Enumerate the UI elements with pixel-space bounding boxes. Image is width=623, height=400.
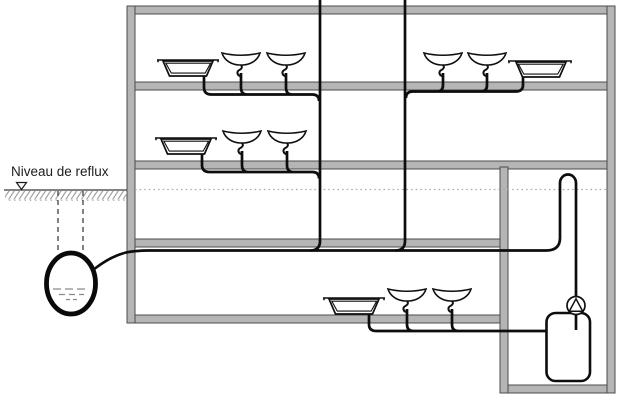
interior-wall xyxy=(500,167,508,393)
right-wall xyxy=(607,6,615,393)
ground: Niveau de reflux xyxy=(4,164,127,201)
washbasin-icon xyxy=(433,289,471,312)
bathtub-icon xyxy=(323,298,385,314)
washbasin-icon xyxy=(222,53,260,76)
bathtub-icon xyxy=(508,61,572,77)
annex-floor-slab xyxy=(500,385,615,393)
washbasin-icon xyxy=(268,131,306,154)
floor3-slab xyxy=(127,239,508,247)
floor2-slab xyxy=(127,161,615,169)
left-wall xyxy=(127,6,135,323)
washbasin-icon xyxy=(388,289,426,312)
backflow-diagram: Niveau de reflux xyxy=(0,0,623,400)
lifting-station xyxy=(547,297,591,382)
roof-slab xyxy=(127,6,615,14)
vent-stack-1 xyxy=(311,0,321,251)
bathtub-icon xyxy=(157,60,219,76)
reflux-marker-icon xyxy=(17,183,27,190)
reflux-level-label: Niveau de reflux xyxy=(11,164,109,179)
diagram-canvas: Niveau de reflux xyxy=(0,0,623,400)
washbasin-icon xyxy=(468,53,506,76)
ground-hatch xyxy=(5,191,127,201)
lifting-tank-icon xyxy=(547,313,591,381)
outdoor-sump xyxy=(47,191,96,314)
vent-stack-2 xyxy=(396,0,406,251)
bathtub-icon xyxy=(155,138,217,154)
washbasin-icon xyxy=(223,131,261,154)
washbasin-icon xyxy=(267,53,305,76)
floor1-slab xyxy=(127,82,615,90)
sump-icon xyxy=(47,253,96,314)
washbasin-icon xyxy=(424,53,462,76)
